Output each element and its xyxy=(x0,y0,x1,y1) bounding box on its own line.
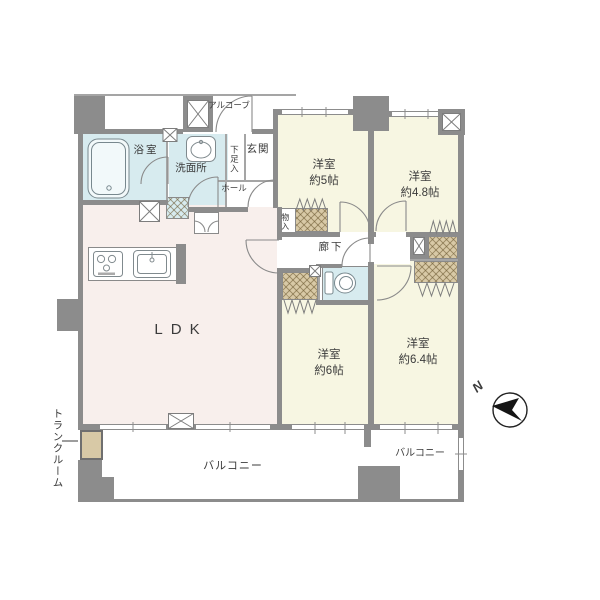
compass-icon xyxy=(492,393,527,427)
label-bedroom5-size: 約5帖 xyxy=(284,175,364,188)
label-corridor: 廊下 xyxy=(301,242,361,254)
wall xyxy=(273,109,278,208)
label-bedroom6-type: 洋室 xyxy=(289,349,369,362)
label-bath: 浴室 xyxy=(116,145,176,157)
wall xyxy=(74,96,105,131)
label-trunk-room: トランクルーム xyxy=(51,392,63,504)
label-bedroom64-size: 約6.4帖 xyxy=(378,354,458,367)
wall xyxy=(277,268,318,272)
label-bedroom48-type: 洋室 xyxy=(380,171,460,184)
label-alcove: アルコーブ xyxy=(199,101,259,110)
window xyxy=(380,424,452,430)
label-bedroom64-type: 洋室 xyxy=(378,338,458,351)
wall xyxy=(176,244,186,284)
wall xyxy=(368,131,374,244)
kitchen-counter xyxy=(88,247,180,281)
washer-space xyxy=(166,197,189,219)
window xyxy=(292,424,364,430)
balcony-pillar xyxy=(358,466,400,502)
trunk-steps xyxy=(78,460,102,477)
closet-bedroom5 xyxy=(294,208,328,232)
window xyxy=(392,111,438,117)
label-balcony-sub: バルコニー xyxy=(370,448,470,459)
corridor-vestibule-area xyxy=(374,237,410,264)
label-entrance: 玄関 xyxy=(228,144,288,156)
closet-bedroom6 xyxy=(282,272,318,300)
trunk-room-box xyxy=(80,430,103,460)
hall-cabinet xyxy=(194,212,219,234)
wall xyxy=(277,272,282,424)
room-bedroom6-area xyxy=(282,300,368,424)
wall xyxy=(353,96,389,131)
wall xyxy=(368,262,374,424)
label-ldk: LDK xyxy=(131,322,231,339)
window xyxy=(196,424,270,430)
wall xyxy=(316,300,368,305)
label-hall: ホール xyxy=(209,184,259,193)
pipe-space-frame xyxy=(410,233,428,259)
balcony-rail xyxy=(98,499,460,502)
balcony-divider xyxy=(364,430,371,447)
label-washroom: 洗面所 xyxy=(156,163,226,175)
wall xyxy=(244,134,246,180)
room-ldk-area xyxy=(83,205,277,424)
label-bedroom5-type: 洋室 xyxy=(284,159,364,172)
floor-plan: アルコーブ 浴室 洗面所 下足入 玄関 ホール 物入 廊下 LDK 洋室 約5帖… xyxy=(0,0,600,600)
wall xyxy=(410,259,458,261)
label-bedroom6-size: 約6帖 xyxy=(289,365,369,378)
pillar xyxy=(57,299,83,331)
window xyxy=(282,109,348,115)
window xyxy=(100,424,166,430)
wall xyxy=(83,200,168,205)
wall xyxy=(318,268,320,302)
label-balcony-main: バルコニー xyxy=(183,460,283,472)
wall xyxy=(370,232,376,237)
wall xyxy=(78,129,83,430)
label-storage: 物入 xyxy=(280,210,289,234)
genkan-step-line xyxy=(218,180,273,182)
label-bedroom48-size: 約4.8帖 xyxy=(380,187,460,200)
label-shoe-cupboard: 下足入 xyxy=(229,135,238,183)
closet-bedroom64 xyxy=(414,261,458,283)
label-north: N xyxy=(467,377,488,398)
room-toilet-area xyxy=(322,266,372,302)
